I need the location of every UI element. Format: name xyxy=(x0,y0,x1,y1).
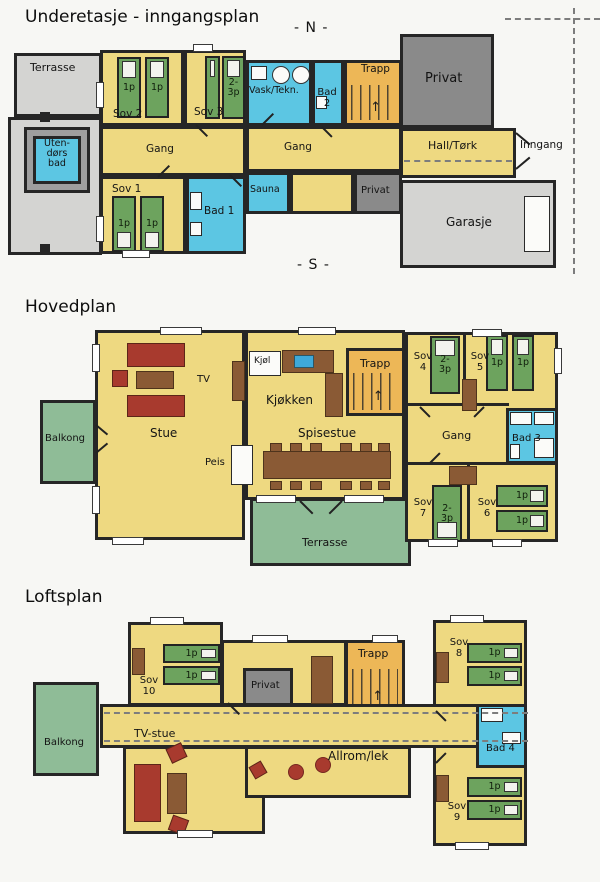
bed-capacity-label: 1p xyxy=(142,198,162,250)
sofa xyxy=(127,343,185,367)
wardrobe xyxy=(462,379,477,411)
bed-sov1-b: 1p xyxy=(140,196,164,252)
vask-tekn-label: Vask/Tekn. xyxy=(249,86,299,96)
sofa xyxy=(127,395,185,417)
bed-sov6-b: 1p xyxy=(496,510,548,532)
inngang-label: Inngang xyxy=(520,140,563,151)
sov-5-label: Sov 5 xyxy=(468,352,492,373)
dining-chair xyxy=(360,481,372,490)
bed-capacity-label: 1p xyxy=(498,487,546,505)
bed-capacity-label: 2- 3p xyxy=(432,338,458,392)
balkong-room xyxy=(33,682,99,776)
stair-up-arrow: ↑ xyxy=(372,689,383,704)
terrasse-room xyxy=(250,498,411,566)
bed-sov9-b: 1p xyxy=(467,800,522,820)
garage-door xyxy=(524,196,550,252)
wardrobe xyxy=(436,775,449,802)
washing-machine xyxy=(292,66,310,84)
window xyxy=(428,539,458,547)
privat-label: Privat xyxy=(425,72,462,86)
kitchen-counter xyxy=(325,373,343,417)
window xyxy=(298,327,336,335)
kjokken-label: Kjøkken xyxy=(266,394,313,407)
kjol-label: Kjøl xyxy=(254,357,270,366)
bad4-sink xyxy=(481,708,503,722)
bed-sov2-b: 1p xyxy=(145,57,169,118)
window xyxy=(150,617,184,625)
window xyxy=(492,539,522,547)
hall-tork-label: Hall/Tørk xyxy=(428,140,477,152)
bad3-toilet xyxy=(510,444,520,459)
terrace-door xyxy=(344,495,384,503)
spisestue-label: Spisestue xyxy=(298,427,356,440)
window xyxy=(122,250,150,258)
wardrobe xyxy=(449,466,477,485)
wall-gang-sov67 xyxy=(405,462,558,465)
allrom-label: Allrom/lek xyxy=(328,750,388,763)
kitchen-sink xyxy=(294,355,314,368)
bed-sov1-a: 1p xyxy=(112,196,136,252)
window xyxy=(450,615,484,623)
bed-capacity-label: 1p xyxy=(514,337,532,389)
balkong-label: Balkong xyxy=(44,738,84,749)
sofa xyxy=(134,764,161,822)
tv-bench xyxy=(232,361,245,401)
sov-3-label: Sov 3 xyxy=(194,107,223,118)
platform-post xyxy=(40,244,50,254)
bed-capacity-label: 1p xyxy=(165,646,218,661)
floor-title-hovedplan: Hovedplan xyxy=(25,297,116,317)
compass-south-label: - S - xyxy=(297,257,330,273)
bed-pillow xyxy=(210,60,215,77)
peis-label: Peis xyxy=(205,458,225,469)
tv-stue-label: TV-stue xyxy=(134,728,175,740)
terrace-door xyxy=(256,495,296,503)
sov-2-label: Sov 2 xyxy=(113,109,142,120)
sov-10-label: Sov 10 xyxy=(136,676,162,697)
peis-fireplace xyxy=(231,445,253,485)
bad3-sink xyxy=(510,412,532,425)
gang-label: Gang xyxy=(442,430,471,442)
armchair xyxy=(112,370,128,387)
bed-capacity-label: 1p xyxy=(165,668,218,683)
bad-2-label: Bad 2 xyxy=(315,88,339,109)
gang-left-label: Gang xyxy=(146,144,174,155)
trapp-label: Trapp xyxy=(358,648,388,660)
bed-sov8-a: 1p xyxy=(467,643,522,663)
dining-chair xyxy=(290,481,302,490)
sov-4-label: Sov 4 xyxy=(411,352,435,373)
roof-slope-line xyxy=(104,740,528,742)
window xyxy=(193,44,213,52)
balkong-label: Balkong xyxy=(45,434,85,445)
window xyxy=(252,635,288,643)
washing-machine xyxy=(272,66,290,84)
bed-sov10-b: 1p xyxy=(163,666,220,685)
bed-capacity-label: 1p xyxy=(469,802,520,818)
window xyxy=(92,486,100,514)
bed-capacity-label: 1p xyxy=(469,668,520,684)
tv-label: TV xyxy=(197,375,210,386)
sov-7-label: Sov 7 xyxy=(411,498,435,519)
bed-sov3-b: 2- 3p xyxy=(222,56,245,119)
dining-chair xyxy=(378,481,390,490)
bed-sov5-b: 1p xyxy=(512,335,534,391)
platform-post xyxy=(40,112,50,122)
bed-sov7: 2- 3p xyxy=(432,485,462,542)
chimney xyxy=(311,656,333,704)
window xyxy=(160,327,202,335)
sov-9-label: Sov 9 xyxy=(445,802,469,823)
dining-chair xyxy=(310,481,322,490)
stair-up-arrow: ↑ xyxy=(373,389,384,404)
window xyxy=(372,635,398,643)
dining-chair xyxy=(310,443,322,452)
dining-chair xyxy=(340,481,352,490)
window xyxy=(96,216,104,242)
stue-label: Stue xyxy=(150,427,177,440)
floor-title-loftsplan: Loftsplan xyxy=(25,587,103,607)
garasje-label: Garasje xyxy=(446,216,492,229)
entry-door-swing xyxy=(515,157,530,170)
bad-1-label: Bad 1 xyxy=(204,206,234,217)
window xyxy=(177,830,213,838)
table xyxy=(167,773,187,814)
utendors-bad-label: Uten- dørs bad xyxy=(36,139,78,169)
dashed-floor-line xyxy=(404,160,512,162)
bed-capacity-label: 1p xyxy=(147,59,167,116)
beanbag xyxy=(288,764,304,780)
compass-north-label: - N - xyxy=(294,20,328,36)
roof-slope-line xyxy=(104,712,528,714)
bad1-toilet xyxy=(190,222,202,236)
bad-3-label: Bad 3 xyxy=(512,434,541,445)
bed-sov8-b: 1p xyxy=(467,666,522,686)
dining-chair xyxy=(378,443,390,452)
hall-tork-room xyxy=(400,128,516,178)
window xyxy=(96,82,104,108)
bed-sov6-a: 1p xyxy=(496,485,548,507)
dining-chair xyxy=(270,481,282,490)
window xyxy=(92,344,100,372)
dining-chair xyxy=(270,443,282,452)
bad3-cabinet xyxy=(534,412,554,425)
sov-6-label: Sov 6 xyxy=(475,498,499,519)
trapp-label: Trapp xyxy=(361,64,390,75)
bed-capacity-label: 1p xyxy=(469,645,520,661)
wardrobe xyxy=(132,648,145,675)
sauna-label: Sauna xyxy=(250,185,280,195)
sov-1-label: Sov 1 xyxy=(112,184,141,195)
privat-label: Privat xyxy=(251,681,280,692)
floor-plan-canvas: Underetasje - inngangsplan - N - - S - H… xyxy=(0,0,600,882)
coffee-table xyxy=(136,371,174,389)
dining-chair xyxy=(340,443,352,452)
window xyxy=(455,842,489,850)
trapp-label: Trapp xyxy=(360,358,390,370)
privat-small-label: Privat xyxy=(361,186,390,197)
bad-4-label: Bad 4 xyxy=(486,744,515,755)
bed-capacity-label: 2- 3p xyxy=(224,58,243,117)
gang-center-label: Gang xyxy=(284,142,312,153)
stair-up-arrow: ↑ xyxy=(370,100,381,115)
dining-chair xyxy=(290,443,302,452)
bed-capacity-label: 1p xyxy=(114,198,134,250)
bed-capacity-label: 1p xyxy=(469,779,520,795)
bed-sov9-a: 1p xyxy=(467,777,522,797)
bed-capacity-label: 1p xyxy=(498,512,546,530)
gang-center-room xyxy=(246,126,402,172)
bed-capacity-label: 2- 3p xyxy=(434,487,460,540)
dining-table xyxy=(263,451,391,479)
property-line xyxy=(573,8,575,274)
terrasse-label: Terrasse xyxy=(30,62,75,74)
bad1-sink xyxy=(190,192,202,210)
tech-unit xyxy=(251,66,267,80)
property-line xyxy=(505,18,600,20)
terrasse-label: Terrasse xyxy=(302,537,347,549)
window xyxy=(112,537,144,545)
bed-sov10-a: 1p xyxy=(163,644,220,663)
stair-nook-room xyxy=(290,172,354,214)
dining-chair xyxy=(360,443,372,452)
sov-8-label: Sov 8 xyxy=(447,638,471,659)
window xyxy=(554,348,562,374)
floor-title-underetasje: Underetasje - inngangsplan xyxy=(25,7,259,27)
window xyxy=(472,329,502,337)
